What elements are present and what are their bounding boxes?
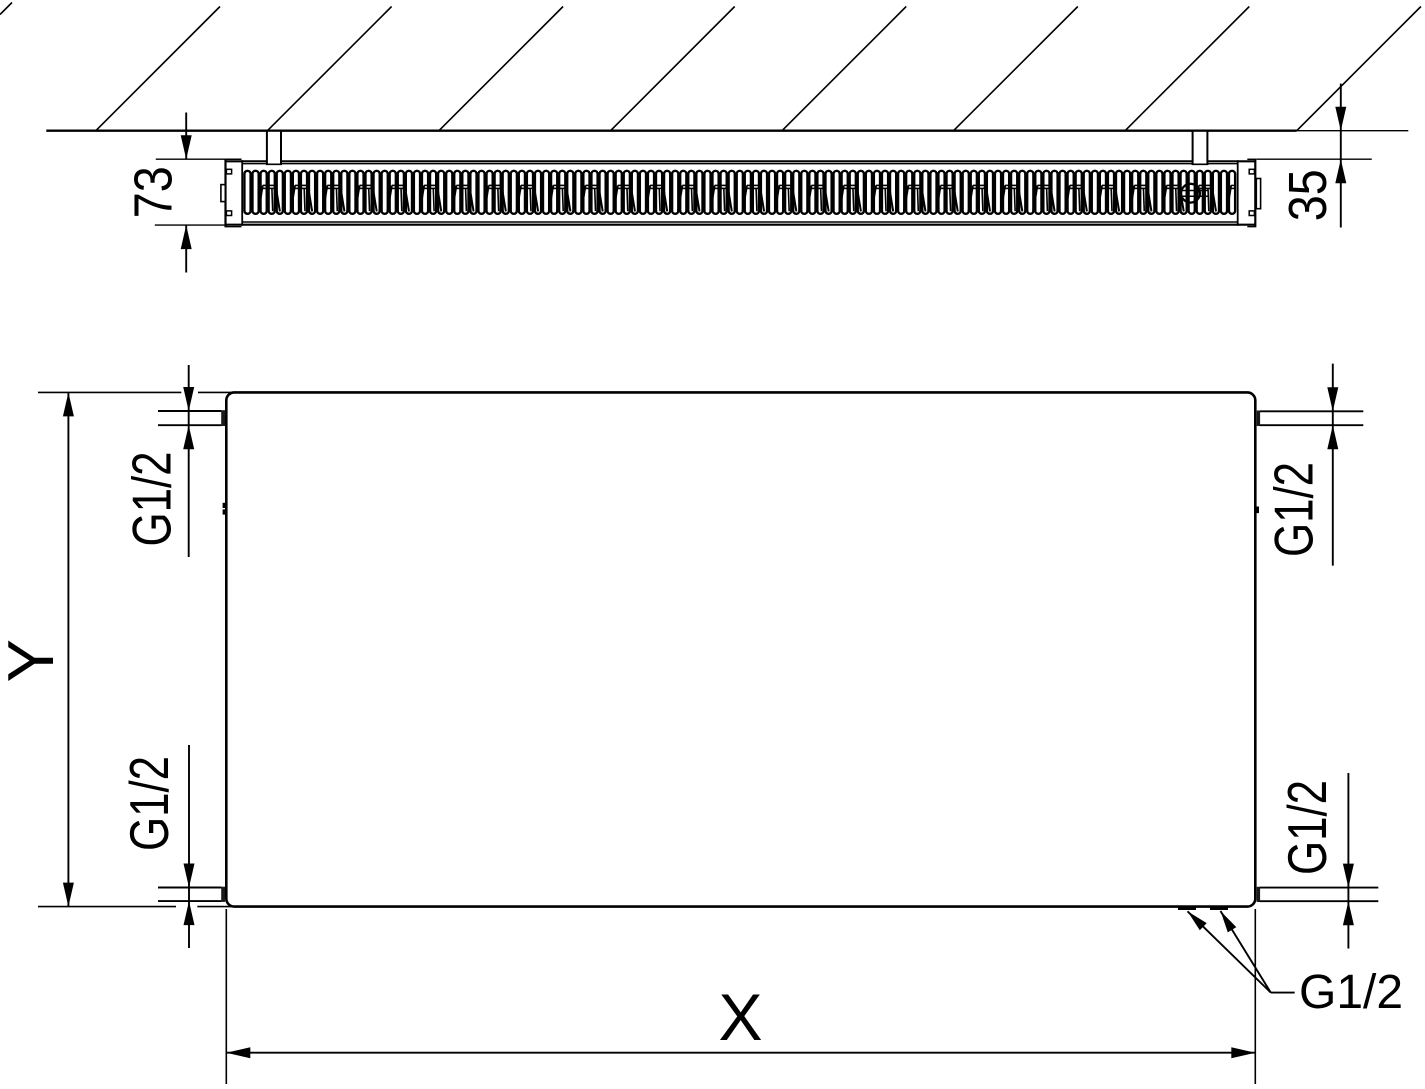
- svg-text:G1/2: G1/2: [1263, 462, 1325, 557]
- svg-text:G1/2: G1/2: [118, 756, 180, 851]
- svg-text:G1/2: G1/2: [121, 452, 183, 547]
- svg-text:G1/2: G1/2: [1276, 780, 1338, 875]
- svg-text:73: 73: [123, 166, 183, 218]
- svg-text:35: 35: [1278, 169, 1338, 221]
- svg-text:G1/2: G1/2: [1299, 966, 1403, 1019]
- svg-text:Y: Y: [0, 639, 67, 682]
- svg-text:X: X: [718, 980, 762, 1054]
